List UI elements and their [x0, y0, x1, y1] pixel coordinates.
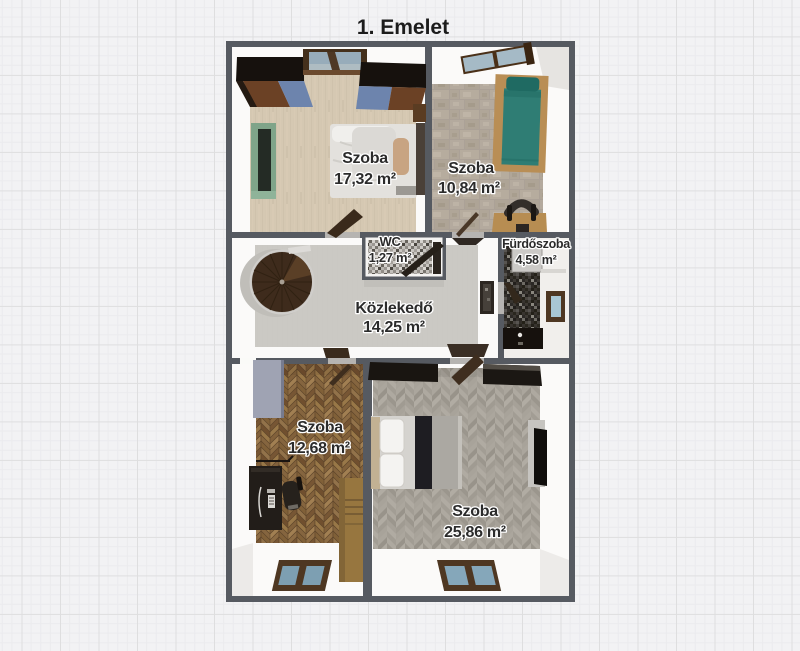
svg-text:Szoba: Szoba	[342, 150, 388, 167]
svg-text:25,86 m²: 25,86 m²	[444, 524, 506, 541]
svg-text:Szoba: Szoba	[452, 503, 498, 520]
svg-text:17,32 m²: 17,32 m²	[334, 171, 396, 188]
svg-text:1,27 m²: 1,27 m²	[369, 250, 413, 265]
svg-text:WC: WC	[379, 234, 401, 249]
svg-text:Közlekedő: Közlekedő	[355, 300, 433, 317]
svg-text:Szoba: Szoba	[297, 419, 343, 436]
svg-text:12,68 m²: 12,68 m²	[288, 440, 350, 457]
svg-text:Szoba: Szoba	[448, 160, 494, 177]
svg-text:Fürdőszoba: Fürdőszoba	[502, 237, 571, 251]
svg-text:1. Emelet: 1. Emelet	[357, 16, 449, 39]
svg-text:4,58 m²: 4,58 m²	[516, 253, 557, 267]
svg-text:14,25 m²: 14,25 m²	[363, 319, 425, 336]
svg-text:10,84 m²: 10,84 m²	[438, 180, 500, 197]
